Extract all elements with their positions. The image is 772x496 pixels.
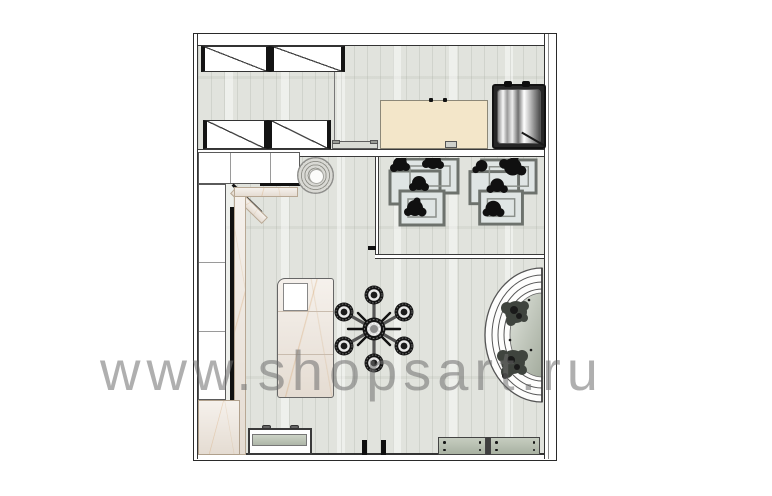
screw <box>479 441 482 444</box>
screw <box>533 441 536 444</box>
stockroom-wall-vertical <box>375 157 379 256</box>
glass-bench <box>438 437 486 455</box>
cylinder-knob <box>522 81 530 87</box>
bench-knob <box>290 425 299 429</box>
watermark-text: www.shopsart.ru <box>100 342 700 401</box>
screw <box>479 449 482 452</box>
counter-knob <box>429 98 433 102</box>
chrome-cylinder-unit <box>492 84 546 149</box>
wardrobe-unit <box>203 120 268 149</box>
screw <box>443 441 446 444</box>
stockroom-wall-horizontal <box>375 254 544 259</box>
shelf-cap <box>332 140 340 144</box>
floorplan-image: www.shopsart.ru <box>0 0 772 496</box>
glass-bench <box>490 437 540 455</box>
cylinder-knob <box>504 81 512 87</box>
glass-bench <box>248 428 312 455</box>
plant-table-group <box>388 158 460 228</box>
desk-seam <box>278 311 333 312</box>
wardrobe-unit <box>268 120 331 149</box>
screw <box>495 449 498 452</box>
cabinet-divider <box>230 153 231 183</box>
counter-knob <box>443 98 447 102</box>
wall-mounted-shelf <box>332 141 378 149</box>
bench-glass <box>252 434 307 446</box>
wall-top <box>194 34 555 46</box>
plant-table-group <box>468 158 538 228</box>
bench-knob <box>262 425 271 429</box>
screw <box>495 441 498 444</box>
round-spiral-rug <box>297 157 334 194</box>
wall-handle <box>445 141 457 148</box>
entry-post <box>381 440 386 455</box>
entry-post <box>362 440 367 455</box>
counter-edge-trim <box>260 183 301 186</box>
shelf-divider <box>199 331 225 332</box>
door-stop-mark <box>368 246 376 250</box>
chrome-surface <box>497 89 541 144</box>
wardrobe-unit <box>270 46 345 72</box>
cash-desk-inset <box>283 283 308 311</box>
wardrobe-unit <box>201 46 270 72</box>
screw <box>533 449 536 452</box>
rug-center <box>309 169 324 184</box>
beige-counter-table <box>380 100 488 149</box>
shelf-divider <box>199 262 225 263</box>
marble-corner-podium <box>198 400 240 455</box>
corner-display-cabinet <box>198 152 300 184</box>
rack-hub <box>363 318 386 341</box>
screw <box>443 449 446 452</box>
cabinet-divider <box>270 153 271 183</box>
shelf-cap <box>370 140 378 144</box>
